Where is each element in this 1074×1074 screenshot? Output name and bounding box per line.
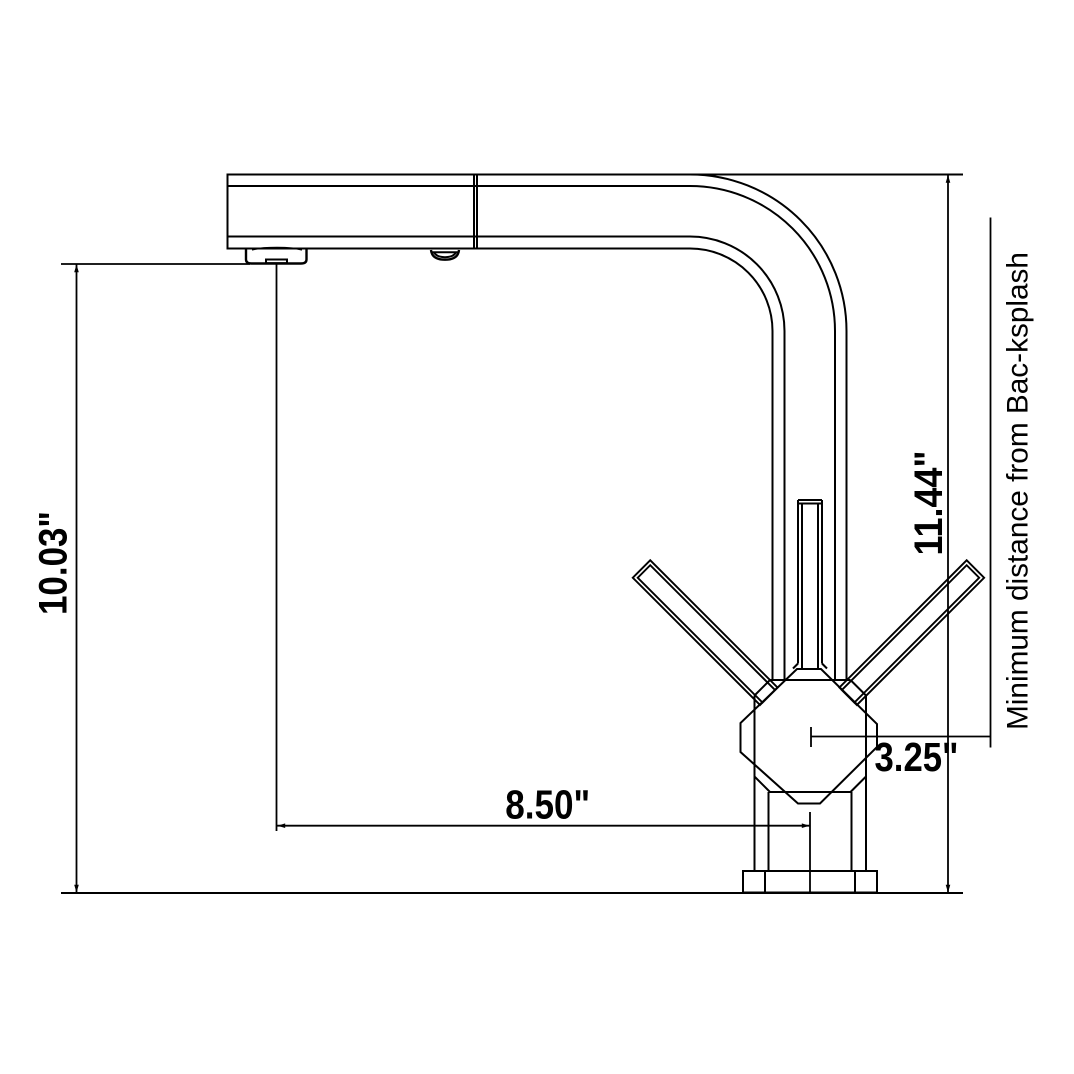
svg-text:8.50": 8.50": [505, 782, 590, 828]
svg-text:3.25": 3.25": [875, 734, 959, 780]
svg-text:Minimum distance from Bac-kspl: Minimum distance from Bac-ksplash: [1002, 252, 1035, 730]
svg-text:10.03": 10.03": [32, 511, 76, 615]
svg-text:11.44": 11.44": [907, 451, 951, 556]
